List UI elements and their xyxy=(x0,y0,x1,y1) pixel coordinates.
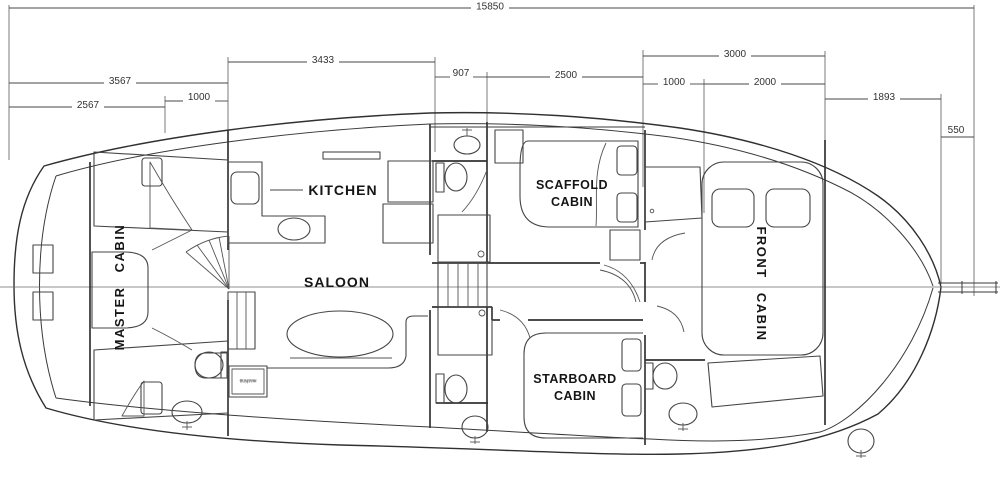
dim-corridor: 907 xyxy=(435,68,487,79)
berth-top xyxy=(94,152,228,232)
kitchen-counter xyxy=(228,162,325,243)
dim-bowsprit-value: 550 xyxy=(948,125,965,136)
dim-mid-value: 2500 xyxy=(555,70,578,81)
hull-inner-bottom xyxy=(56,288,933,441)
dim-front-bed-value: 2000 xyxy=(754,77,777,88)
dim-aft: 3567 xyxy=(9,76,228,87)
door-swing xyxy=(152,230,192,250)
dim-saloon-value: 3433 xyxy=(312,55,335,66)
pillow xyxy=(766,189,810,227)
dimension-extension-lines xyxy=(9,5,974,296)
dim-master-value: 2567 xyxy=(77,100,100,111)
sofa xyxy=(228,292,255,349)
toilet-icon xyxy=(436,374,467,403)
kitchen-sink xyxy=(231,172,259,204)
washing-machine-label-2: machine xyxy=(239,378,257,383)
dim-aft-value: 3567 xyxy=(109,76,132,87)
stove-icon xyxy=(278,218,310,240)
door-swing xyxy=(152,328,192,350)
door-swing xyxy=(600,270,636,302)
dimensions: 15850 3567 2567 1000 3433 907 xyxy=(9,2,974,138)
master-cabin: MASTER CABIN xyxy=(33,152,229,430)
starboard-cabin-label-1: STARBOARD xyxy=(533,372,616,386)
pillow xyxy=(622,384,641,416)
stern-locker xyxy=(33,245,53,273)
dim-bow-value: 1893 xyxy=(873,92,896,103)
scaffold-cabin-label-2: CABIN xyxy=(551,195,593,209)
door-swing xyxy=(657,306,684,332)
dim-bow: 1893 xyxy=(825,92,941,103)
pillow xyxy=(622,339,641,371)
dim-front-value: 3000 xyxy=(724,49,747,60)
side-berth xyxy=(708,356,823,407)
starboard-cabin: STARBOARD CABIN xyxy=(500,310,643,438)
dim-saloon: 3433 xyxy=(228,55,435,66)
pillow xyxy=(142,158,162,186)
saloon-label: SALOON xyxy=(304,274,370,290)
blanket-top xyxy=(150,162,192,230)
l-bench xyxy=(267,316,428,368)
boat-floor-plan: 15850 3567 2567 1000 3433 907 xyxy=(0,0,1000,483)
stern-locker xyxy=(33,292,53,320)
bow-platform xyxy=(938,281,998,294)
cabinet xyxy=(610,230,640,260)
scaffold-cabin: SCAFFOLD CABIN xyxy=(495,130,640,302)
front-cabin-label: FRONT CABIN xyxy=(754,226,769,341)
door-swing xyxy=(652,233,685,260)
cabinet xyxy=(495,130,523,163)
dim-corridor-value: 907 xyxy=(453,68,470,79)
dim-front: 3000 xyxy=(643,49,825,60)
master-cabin-label: MASTER CABIN xyxy=(112,224,127,351)
pillow xyxy=(617,146,637,175)
cabinet xyxy=(383,204,433,243)
dim-overall-value: 15850 xyxy=(476,2,504,13)
dim-mid: 2500 xyxy=(487,70,643,81)
door-swing xyxy=(462,170,487,212)
curved-stairs xyxy=(186,236,229,289)
stairs xyxy=(438,263,487,307)
washing-machine: washing machine xyxy=(229,366,267,397)
dim-front-bed: 2000 xyxy=(704,77,825,88)
pillow xyxy=(712,189,754,227)
closet xyxy=(645,167,702,222)
kitchen-label: KITCHEN xyxy=(308,182,377,198)
walls xyxy=(90,122,825,445)
sink-icon xyxy=(848,429,874,458)
dim-master: 2567 xyxy=(9,100,165,111)
cabinet xyxy=(388,161,433,202)
saloon: washing machine SALOON xyxy=(195,274,428,397)
roof-hatch xyxy=(323,152,380,159)
kitchen: KITCHEN xyxy=(228,152,433,243)
mid-bathrooms xyxy=(436,128,492,444)
dim-aft-step-value: 1000 xyxy=(188,92,211,103)
saloon-table xyxy=(287,311,393,357)
starboard-cabin-label-2: CABIN xyxy=(554,389,596,403)
dim-bowsprit: 550 xyxy=(941,125,974,137)
dim-front-closet: 1000 xyxy=(643,77,704,88)
shower-lower xyxy=(438,307,492,355)
toilet-icon xyxy=(645,363,677,389)
door-swing xyxy=(500,310,530,338)
sink-icon xyxy=(454,128,480,154)
dim-front-closet-value: 1000 xyxy=(663,77,686,88)
toilet-icon xyxy=(436,163,467,192)
pillow xyxy=(617,193,637,222)
shower-upper xyxy=(438,215,490,262)
floor-plan-drawing: 15850 3567 2567 1000 3433 907 xyxy=(0,0,1000,483)
sink-icon xyxy=(669,403,697,431)
scaffold-cabin-label-1: SCAFFOLD xyxy=(536,178,608,192)
toilet-icon xyxy=(195,352,228,378)
dim-aft-step: 1000 xyxy=(165,92,228,103)
dim-overall: 15850 xyxy=(9,2,974,13)
